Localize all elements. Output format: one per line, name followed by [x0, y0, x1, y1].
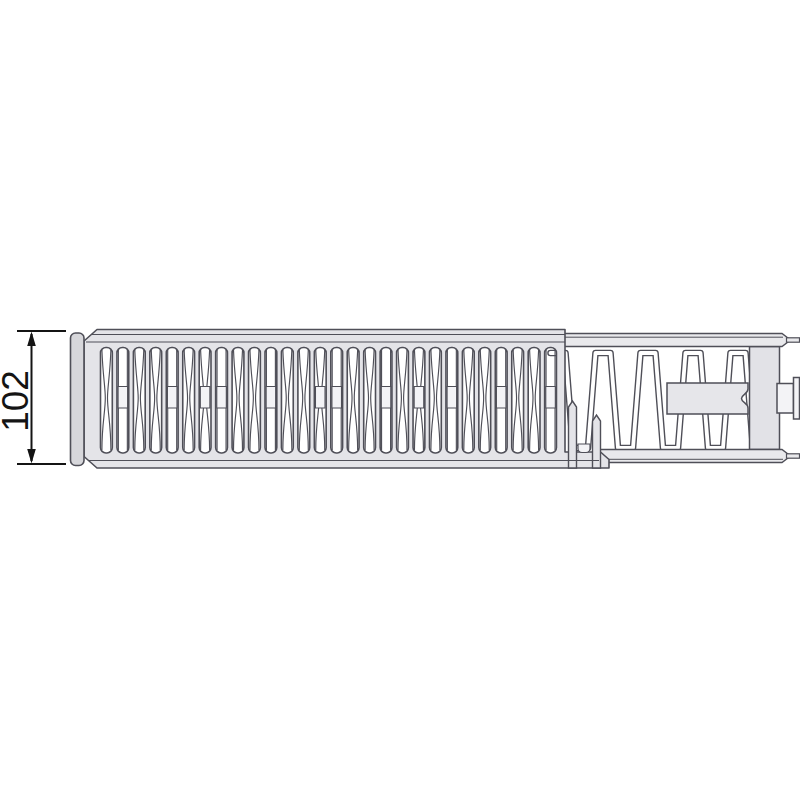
radiator-top-view-drawing: 102	[0, 0, 800, 800]
slot-fin-pattern	[371, 350, 374, 450]
slot-fin-pattern	[190, 350, 193, 450]
slot-fin-pattern	[513, 350, 516, 450]
bottom-pipe-stub	[787, 454, 800, 458]
slot-fin-pattern	[404, 350, 407, 450]
slot-fin-pattern	[135, 350, 138, 450]
slot-fin-pattern	[299, 350, 302, 450]
slot-fin-pattern	[546, 387, 556, 409]
slot-fin-pattern	[167, 387, 177, 409]
dimension-annotation: 102	[0, 331, 66, 464]
break-strip-1	[569, 401, 577, 468]
back-panel-top-band	[558, 334, 800, 347]
connection-flange	[794, 378, 800, 420]
slot-fin-pattern	[437, 350, 440, 450]
slot-fin-pattern	[486, 350, 489, 450]
technical-drawing-canvas: 102	[0, 0, 800, 800]
slot-fin-pattern	[398, 350, 401, 450]
slot-fin-pattern	[217, 387, 227, 409]
slot-fin-pattern	[151, 350, 154, 450]
back-panel-bottom-band	[596, 450, 800, 463]
slot-fin-pattern	[266, 387, 276, 409]
slot-fin-pattern	[315, 387, 325, 409]
slot-fin-pattern	[365, 350, 368, 450]
partial-slot-bottom	[578, 444, 590, 453]
connection-stub	[777, 378, 800, 420]
slot-fin-pattern	[108, 350, 111, 450]
slot-fin-pattern	[305, 350, 308, 450]
slot-fin-pattern	[381, 387, 391, 409]
slot-fin-pattern	[140, 350, 143, 450]
top-pipe-stub	[787, 338, 800, 342]
slot-fin-pattern	[283, 350, 286, 450]
slot-fin-pattern	[354, 350, 357, 450]
slot-fin-pattern	[431, 350, 434, 450]
slot-fin-pattern	[200, 387, 210, 409]
dimension-arrowhead-up	[27, 332, 36, 347]
slot-fin-pattern	[447, 387, 457, 409]
slot-fin-pattern	[530, 350, 533, 450]
slot-fin-pattern	[250, 350, 253, 450]
slot-fin-pattern	[480, 350, 483, 450]
slot-fin-pattern	[184, 350, 187, 450]
slot-fin-pattern	[234, 350, 237, 450]
slot-fin-pattern	[349, 350, 352, 450]
slot-fin-pattern	[496, 387, 506, 409]
end-bracket	[750, 347, 780, 450]
dimension-arrowhead-down	[27, 449, 36, 464]
slot-fin-pattern	[288, 350, 291, 450]
slot-fin-pattern	[157, 350, 160, 450]
slot-fin-pattern	[118, 387, 128, 409]
slot-fin-pattern	[414, 387, 424, 409]
slot-fin-pattern	[102, 350, 105, 450]
panel-section	[667, 383, 748, 414]
left-end-cap	[71, 333, 85, 466]
slot-fin-pattern	[256, 350, 259, 450]
grille-surface	[84, 330, 609, 469]
slot-fin-pattern	[535, 350, 538, 450]
slot-fin-pattern	[332, 387, 342, 409]
slot-fin-pattern	[464, 350, 467, 450]
slot-fin-pattern	[239, 350, 242, 450]
slot-fin-pattern	[519, 350, 522, 450]
dimension-label: 102	[0, 370, 36, 432]
slot-fin-pattern	[469, 350, 472, 450]
